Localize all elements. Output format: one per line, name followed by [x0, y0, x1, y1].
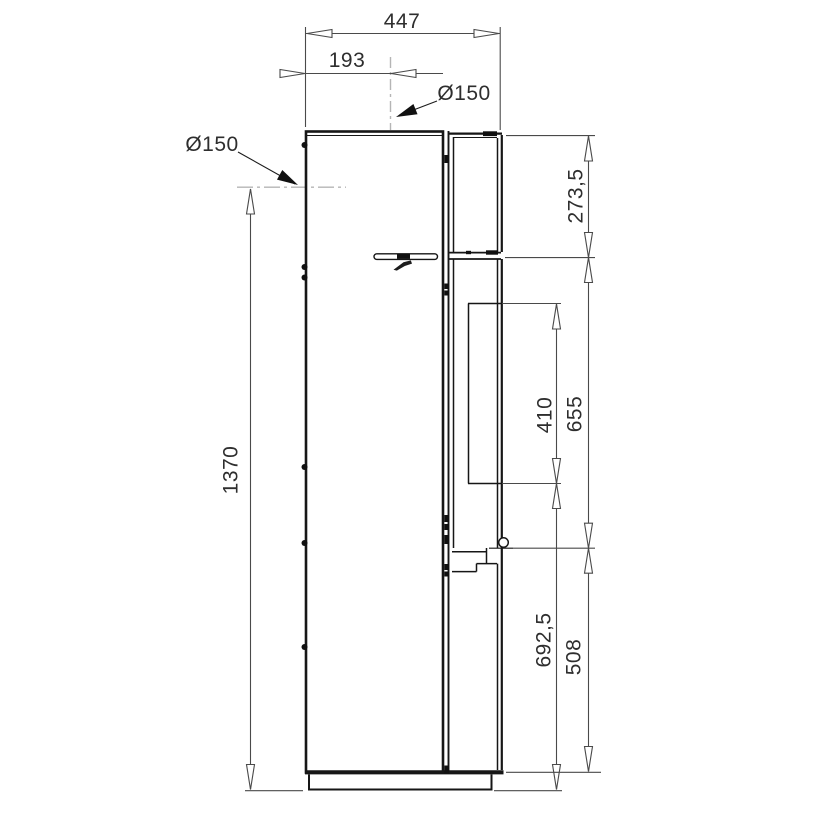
dim-label-447: 447: [384, 10, 421, 33]
door-sill-step: [452, 548, 497, 572]
dim-rear-flue-height: 1370: [220, 189, 304, 791]
dim-label-1370: 1370: [220, 446, 243, 495]
dim-label-410: 410: [534, 397, 557, 434]
dimensions: 447 193 Ø150 Ø150 1370: [185, 10, 601, 791]
dim-top-flue-offset: 193: [280, 49, 443, 78]
dim-label-508: 508: [563, 639, 586, 676]
centerlines: [237, 57, 391, 187]
dim-column-sections: 273,5 655 508: [505, 136, 601, 773]
dim-label-rear-flue-diameter: Ø150: [185, 133, 238, 156]
dim-label-273-5: 273,5: [565, 168, 588, 223]
side-panel: [306, 132, 443, 773]
stove-body-outline: [302, 131, 514, 790]
separator-seal-detail: [486, 250, 498, 254]
door-handle-grip: [394, 260, 413, 270]
dim-label-top-flue-diameter: Ø150: [437, 82, 490, 105]
plinth: [309, 775, 492, 790]
drawing-sheet: 447 193 Ø150 Ø150 1370: [0, 0, 828, 828]
leader-rear-flue: Ø150: [185, 133, 300, 190]
dim-label-692-5: 692,5: [533, 612, 556, 667]
dim-label-193: 193: [329, 49, 366, 72]
dim-label-655: 655: [564, 396, 587, 433]
leader-top-flue: Ø150: [394, 82, 491, 122]
door-latch-knob: [499, 538, 509, 548]
door-handle: [374, 254, 438, 271]
top-seal-detail: [483, 131, 497, 136]
stove-side-view-drawing: 447 193 Ø150 Ø150 1370: [0, 0, 828, 828]
